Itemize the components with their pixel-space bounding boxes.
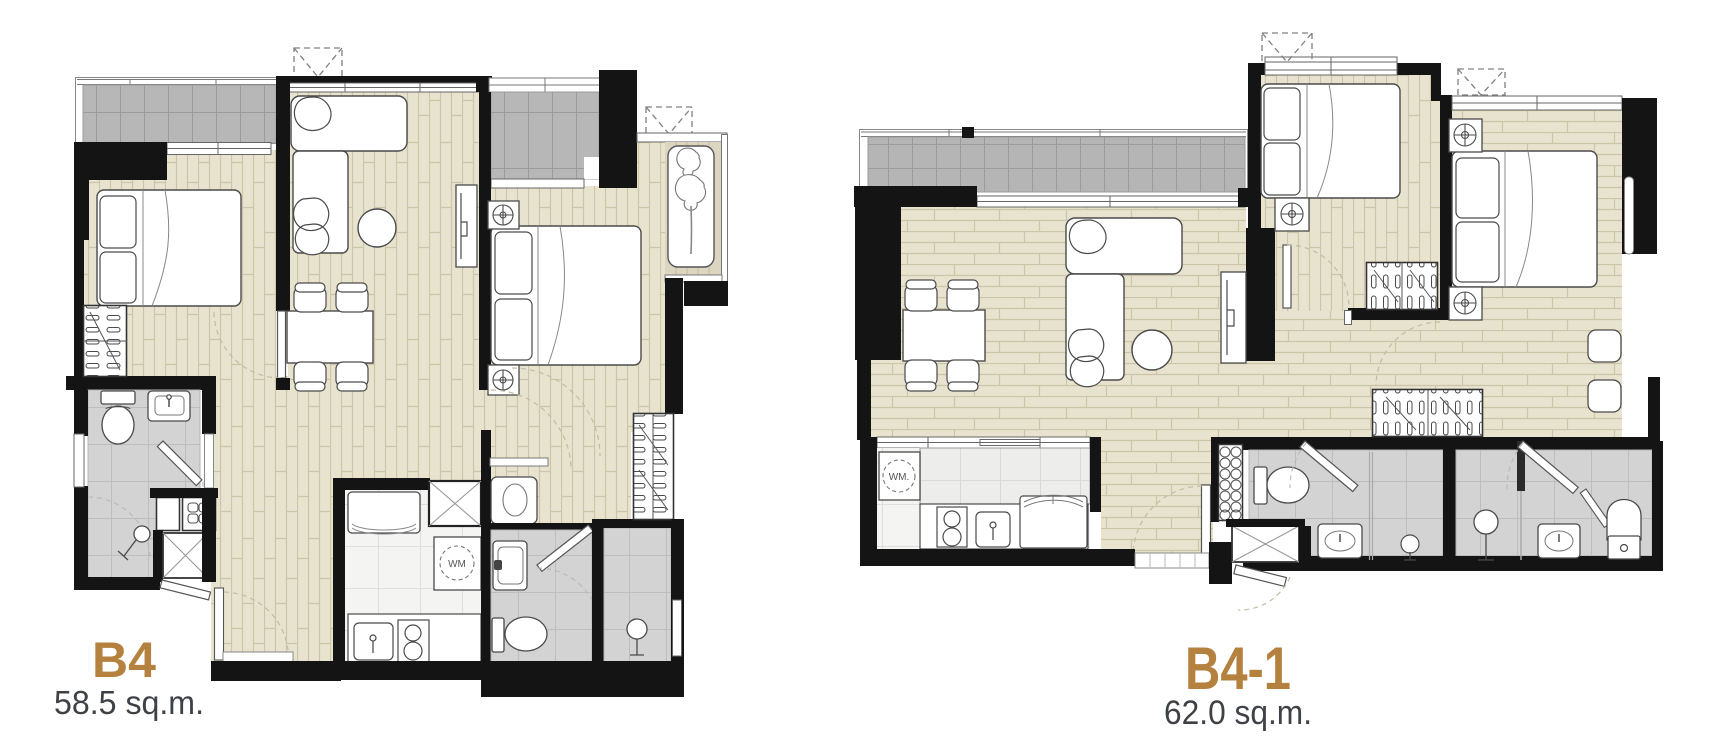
svg-text:B4: B4 [92, 632, 156, 688]
svg-text:58.5 sq.m.: 58.5 sq.m. [54, 684, 204, 721]
svg-text:WM: WM [448, 559, 466, 570]
svg-text:WM.: WM. [889, 472, 910, 483]
svg-text:62.0 sq.m.: 62.0 sq.m. [1164, 694, 1312, 732]
svg-text:B4-1: B4-1 [1185, 635, 1291, 702]
